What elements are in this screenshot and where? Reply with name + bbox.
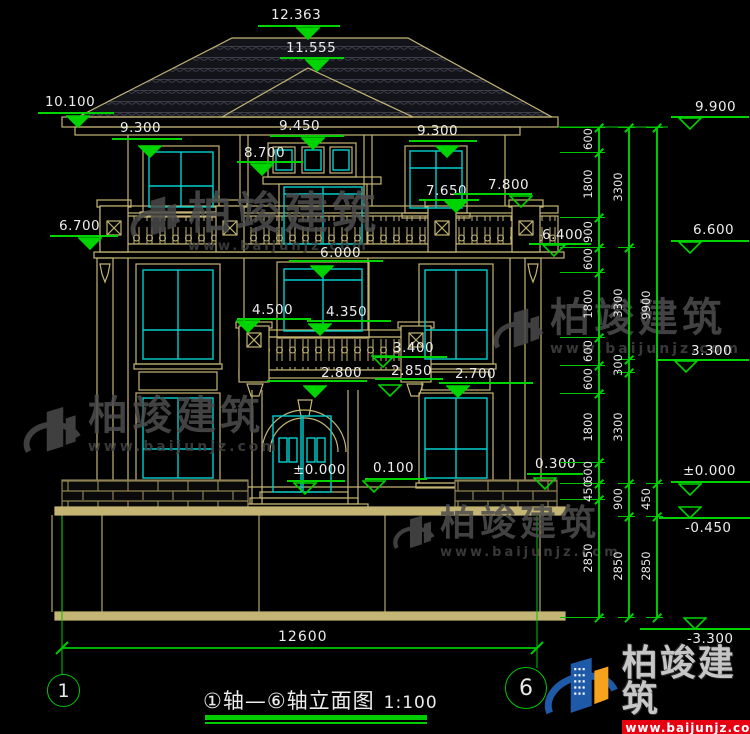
elevation-marker-label: 10.100 xyxy=(45,94,95,110)
brand-logo: 柏竣建筑 www.baijunjz.com xyxy=(541,646,750,734)
elevation-marker-label: 2.850 xyxy=(391,363,432,379)
terrace-balusters xyxy=(100,216,558,244)
elevation-marker-triangle xyxy=(542,242,566,261)
elevation-marker-triangle xyxy=(446,383,470,402)
overall-width-dimension: 12600 xyxy=(278,629,328,645)
dimension-chain-value: 9900 xyxy=(639,290,653,319)
brick-plinth-left xyxy=(62,480,248,510)
dimension-chain-value: 600 xyxy=(581,128,595,150)
axis-bubble-1: 1 xyxy=(47,674,80,707)
elevation-marker-label: 4.350 xyxy=(326,304,367,320)
drawing-scale: 1:100 xyxy=(384,693,438,713)
elevation-marker-label: 9.450 xyxy=(279,118,320,134)
elevation-marker-triangle xyxy=(678,504,702,523)
elevation-marker-triangle xyxy=(303,383,327,402)
elevation-marker-triangle xyxy=(293,480,317,499)
elevation-marker-triangle xyxy=(362,478,386,497)
elevation-marker-triangle xyxy=(250,161,274,180)
elevation-marker-line xyxy=(289,260,383,262)
elevation-marker-triangle xyxy=(301,135,325,154)
elevation-marker-triangle xyxy=(674,358,698,377)
elevation-marker-label: 9.300 xyxy=(417,123,458,139)
elevation-marker-label: 2.700 xyxy=(455,366,496,382)
elevation-marker-line xyxy=(267,380,367,382)
title-underline xyxy=(205,715,427,720)
dimension-chain-value: 1800 xyxy=(581,412,595,441)
elevation-marker-label: 7.800 xyxy=(488,177,529,193)
elevation-marker-label: ±0.000 xyxy=(293,462,346,478)
elevation-marker-label: 0.100 xyxy=(373,460,414,476)
baijun-logo-icon xyxy=(541,649,620,733)
elevation-marker-triangle xyxy=(305,57,329,76)
dimension-chain-value: 600 xyxy=(581,368,595,390)
dimension-chain-value: 2850 xyxy=(581,543,595,572)
elevation-marker-triangle xyxy=(78,235,102,254)
drawing-title: ①轴—⑥轴立面图 xyxy=(203,685,375,715)
dimension-chain-line xyxy=(656,127,658,617)
elevation-marker-label: 12.363 xyxy=(271,7,321,23)
elevation-marker-label: 9.900 xyxy=(695,99,736,115)
elevation-marker-triangle xyxy=(683,615,707,634)
elevation-marker-label: ±0.000 xyxy=(683,463,736,479)
dimension-chain-value: 2850 xyxy=(611,551,625,580)
dimension-chain-value: 600 xyxy=(581,340,595,362)
elevation-marker-label: 0.300 xyxy=(535,456,576,472)
elevation-marker-triangle xyxy=(308,321,332,340)
elevation-marker-triangle xyxy=(533,475,557,494)
foundation-piers xyxy=(52,515,540,612)
elevation-marker-label: 7.650 xyxy=(426,183,467,199)
drawing-title-block: ①轴—⑥轴立面图 1:100 xyxy=(203,685,435,715)
elevation-marker-triangle xyxy=(509,193,533,212)
dimension-chain-value: 1800 xyxy=(581,289,595,318)
elevation-marker-label: 8.700 xyxy=(244,145,285,161)
elevation-marker-label: 6.700 xyxy=(59,218,100,234)
elevation-marker-label: 6.000 xyxy=(320,245,361,261)
elevation-marker-label: 4.500 xyxy=(252,302,293,318)
brand-url: www.baijunjz.com xyxy=(622,720,750,734)
keystone xyxy=(298,400,312,416)
elevation-marker-label: 6.600 xyxy=(693,222,734,238)
cad-canvas: 柏竣建筑 www.baijunjz.com 柏竣建筑 www.baijunjz.… xyxy=(0,0,750,734)
elevation-marker-triangle xyxy=(435,143,459,162)
dimension-chain-value: 3300 xyxy=(611,412,625,441)
elevation-marker-triangle xyxy=(444,198,468,217)
ground-beam xyxy=(55,507,565,515)
dimension-chain-value: 900 xyxy=(581,221,595,243)
dimension-chain-value: 450 xyxy=(581,480,595,502)
elevation-marker-line xyxy=(112,138,182,140)
dimension-chain-value: 600 xyxy=(581,248,595,270)
elevation-marker-label: 11.555 xyxy=(286,40,336,56)
footing xyxy=(55,612,565,620)
pilaster-right xyxy=(525,258,541,485)
elevation-marker-triangle xyxy=(66,113,90,132)
dimension-chain-line xyxy=(598,127,600,617)
elevation-marker-label: 2.800 xyxy=(321,365,362,381)
dimension-chain-value: 1800 xyxy=(581,169,595,198)
elevation-marker-triangle xyxy=(236,318,260,337)
elevation-marker-triangle xyxy=(678,239,702,258)
elevation-marker-line xyxy=(657,359,749,361)
elevation-marker-triangle xyxy=(678,115,702,134)
dimension-chain-value: 900 xyxy=(611,488,625,510)
elevation-marker-triangle xyxy=(138,143,162,162)
pilaster-left xyxy=(97,258,113,485)
dimension-chain-value: 450 xyxy=(639,488,653,510)
dimension-chain-value: 3300 xyxy=(611,172,625,201)
elevation-marker-label: 9.300 xyxy=(120,120,161,136)
elevation-marker-label: 6.400 xyxy=(542,227,583,243)
elevation-marker-triangle xyxy=(678,481,702,500)
dimension-chain-value: 300 xyxy=(611,354,625,376)
elevation-marker-line xyxy=(409,140,477,142)
brand-name: 柏竣建筑 xyxy=(622,646,750,718)
elevation-marker-line xyxy=(659,517,750,519)
dimension-chain-value: 2850 xyxy=(639,551,653,580)
elevation-marker-triangle xyxy=(378,382,402,401)
elevation-marker-label: 3.400 xyxy=(393,340,434,356)
elevation-marker-triangle xyxy=(310,263,334,282)
elevation-marker-label: 3.300 xyxy=(691,343,732,359)
elevation-marker-line xyxy=(375,378,443,380)
dimension-chain-value: 3300 xyxy=(611,288,625,317)
title-underline-thin xyxy=(205,722,427,724)
